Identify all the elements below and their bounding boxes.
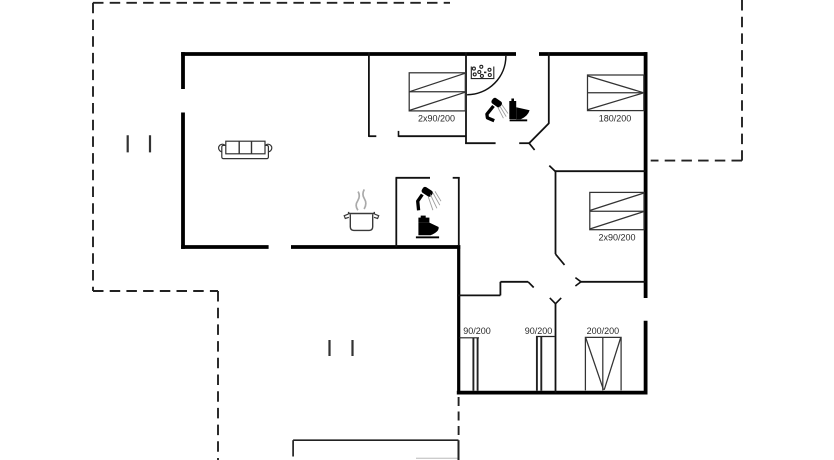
- svg-text:90/200: 90/200: [463, 326, 491, 336]
- svg-text:180/200: 180/200: [599, 114, 632, 124]
- svg-text:2x90/200: 2x90/200: [598, 233, 635, 243]
- svg-text:200/200: 200/200: [587, 326, 620, 336]
- svg-text:2x90/200: 2x90/200: [418, 114, 455, 124]
- svg-text:90/200: 90/200: [525, 326, 553, 336]
